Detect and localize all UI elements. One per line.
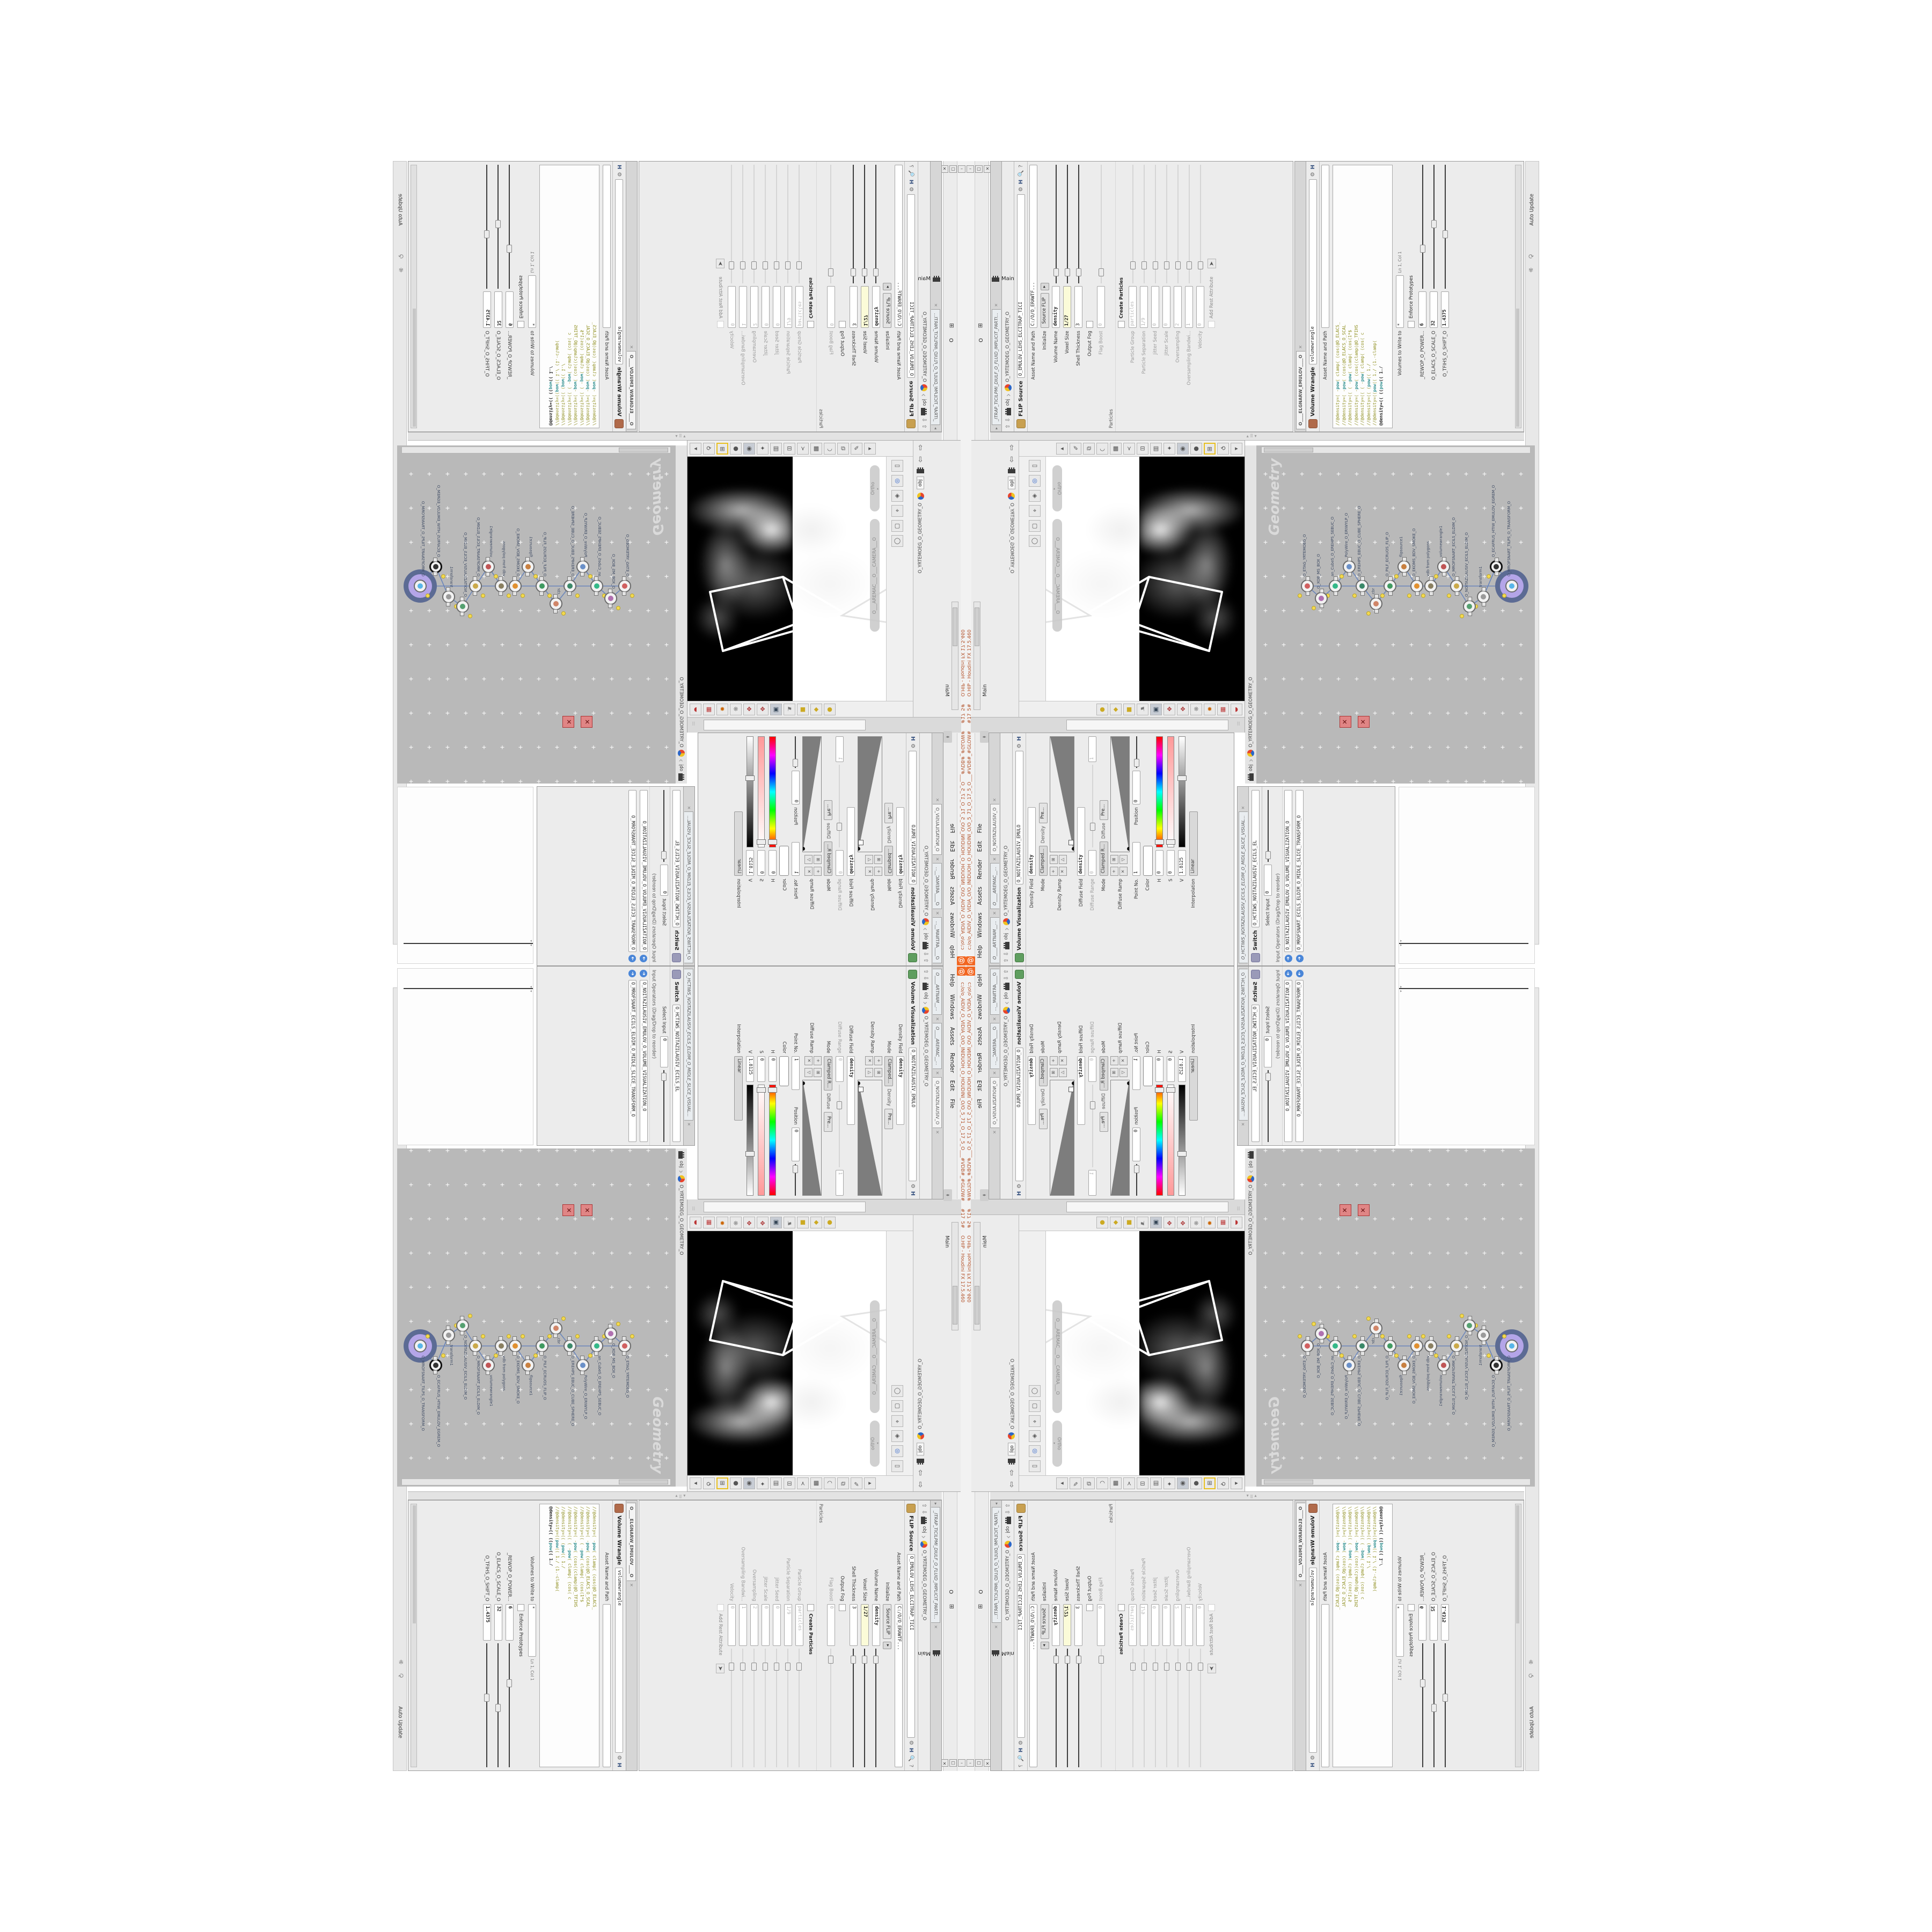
hscript-icon[interactable]: H bbox=[1018, 1748, 1024, 1752]
viewport-display-icon[interactable]: ✥ bbox=[743, 704, 755, 715]
color-swatch[interactable] bbox=[779, 1056, 789, 1086]
viewport-tool-icon[interactable]: ⋎ bbox=[1123, 443, 1135, 455]
param-field[interactable]: 3 bbox=[850, 286, 858, 328]
arrow-down-icon[interactable]: ⇩ bbox=[1005, 1510, 1011, 1514]
gear-icon[interactable]: ⚙ bbox=[910, 743, 916, 748]
obj-tab[interactable]: obj bbox=[1008, 1443, 1015, 1455]
error-badge[interactable]: ✕ bbox=[1358, 1204, 1370, 1216]
cursor-arrow-icon[interactable]: ➤ bbox=[1207, 1664, 1216, 1673]
network-node[interactable] bbox=[576, 1359, 589, 1372]
switch-tab[interactable]: O_HCTIWS_NOITAZILAUSIV_ECILS_ELDIM_O_MID… bbox=[1239, 969, 1248, 1121]
param-field[interactable]: 1.4375 bbox=[1441, 1604, 1449, 1641]
close-tab-icon[interactable]: ✕ bbox=[992, 1071, 997, 1075]
ramp-add-button[interactable]: + bbox=[874, 1056, 882, 1065]
splitter-buttons[interactable]: ◂▸ bbox=[980, 731, 989, 743]
viewport-display-icon[interactable]: ◆ bbox=[810, 704, 822, 715]
viewport-canvas[interactable] bbox=[687, 457, 886, 701]
menu-item-assets[interactable]: Assets bbox=[977, 887, 983, 905]
param-field[interactable]: 1.4375 bbox=[483, 291, 491, 328]
diffuse-range-slider[interactable] bbox=[1092, 1085, 1093, 1167]
h-scrollbar[interactable] bbox=[411, 165, 417, 428]
take-main-label[interactable]: Main bbox=[1001, 1650, 1014, 1656]
search-icon[interactable]: 🔍 bbox=[1018, 1755, 1024, 1761]
breadcrumb-obj[interactable]: obj bbox=[1005, 399, 1011, 406]
density-field-value[interactable]: density bbox=[1028, 807, 1036, 876]
ortho-pill[interactable]: Ortho▾ bbox=[870, 465, 880, 511]
wrangle-node-name-field[interactable]: volumewrangle bbox=[1309, 179, 1317, 364]
volumes-field[interactable]: * bbox=[1396, 1604, 1404, 1657]
viewport-tool-icon[interactable]: ◉ bbox=[1177, 443, 1189, 455]
init-dropdown[interactable]: ▸ bbox=[883, 1642, 892, 1649]
param-slider[interactable] bbox=[1200, 165, 1201, 283]
close-button[interactable]: ✕ bbox=[941, 165, 948, 173]
menu-item-assets[interactable]: Assets bbox=[949, 887, 955, 905]
param-slider[interactable] bbox=[509, 165, 510, 289]
param-slider[interactable] bbox=[1078, 1649, 1079, 1767]
color-swatch[interactable] bbox=[779, 846, 789, 876]
cursor-arrow-icon[interactable]: ➤ bbox=[716, 259, 725, 268]
close-tab-icon[interactable]: ✕ bbox=[994, 303, 999, 307]
window-grid-icon[interactable]: ⊞ bbox=[978, 322, 983, 329]
point-no-value[interactable]: 1 bbox=[792, 842, 800, 876]
hscript-icon[interactable]: H bbox=[1016, 736, 1022, 741]
breadcrumb-obj[interactable]: obj bbox=[1005, 1526, 1011, 1533]
help-icon[interactable]: ? bbox=[1018, 1765, 1024, 1767]
network-node[interactable] bbox=[536, 1340, 548, 1352]
close-tab-icon[interactable]: ✕ bbox=[934, 303, 939, 307]
menu-extra[interactable]: O bbox=[948, 1590, 954, 1594]
network-node[interactable] bbox=[1343, 1359, 1356, 1372]
network-node[interactable] bbox=[1301, 1340, 1314, 1352]
flip-node-name-field[interactable]: O_EMULOV_LEHS_ELCITRAP_TICI bbox=[908, 194, 916, 378]
diffuse-range-max[interactable]: 1 bbox=[1088, 1170, 1096, 1196]
breadcrumb-obj[interactable]: obj bbox=[1004, 992, 1009, 999]
network-node[interactable] bbox=[1424, 1340, 1437, 1352]
viewport-geometry-path[interactable]: O_YRTEMOEG_O_GEOMETRY_O bbox=[918, 1359, 923, 1429]
param-slider[interactable] bbox=[853, 1649, 854, 1767]
network-node[interactable] bbox=[414, 580, 427, 592]
hue-gradient-slider[interactable] bbox=[1156, 1085, 1163, 1196]
ramp-delete-button[interactable]: ✕ bbox=[804, 867, 813, 876]
network-node[interactable] bbox=[1490, 560, 1503, 573]
param-field[interactable]: 1/27 bbox=[1063, 286, 1071, 328]
arrow-up-icon[interactable]: ⇧ bbox=[1004, 969, 1009, 974]
breadcrumb-path[interactable]: O_YRTEMOEG_O_GEOMETRY_O bbox=[1005, 312, 1011, 382]
param-slider[interactable] bbox=[1056, 1649, 1057, 1767]
network-node[interactable] bbox=[442, 590, 455, 603]
arrow-up-icon[interactable]: ⇧ bbox=[1005, 425, 1011, 429]
network-node[interactable] bbox=[469, 1340, 482, 1352]
error-badge[interactable]: ✕ bbox=[562, 1204, 574, 1216]
gear-icon[interactable]: ⚙ bbox=[909, 187, 914, 192]
minimize-button[interactable]: – bbox=[967, 165, 974, 173]
camera-name-pill[interactable]: O___AREMAC___O___CAMERA___O bbox=[1052, 1300, 1062, 1413]
network-node[interactable] bbox=[536, 580, 548, 592]
viewport-side-icon[interactable]: ▭ bbox=[1029, 1460, 1041, 1472]
sat-gradient-slider[interactable] bbox=[1167, 1085, 1174, 1196]
help-icon[interactable]: ? bbox=[909, 165, 914, 167]
viewport-display-icon[interactable]: ✸ bbox=[716, 704, 728, 715]
val-value[interactable]: 1.8125 bbox=[746, 850, 754, 876]
viewport-display-icon[interactable]: ▦ bbox=[703, 1217, 715, 1229]
pane-splitter[interactable]: ▴ ⠿ ▾ bbox=[990, 432, 1524, 441]
vex-code-editor[interactable]: //@density=( -pow( clamp( (cos(@O_ELACS_… bbox=[539, 165, 599, 428]
param-slider[interactable] bbox=[1067, 165, 1068, 283]
viewport-display-icon[interactable]: ▦ bbox=[1217, 1217, 1229, 1229]
param-slider[interactable] bbox=[1101, 165, 1102, 283]
viz-tab[interactable]: O____AREMAC__... bbox=[990, 1023, 999, 1069]
wrangle-tab[interactable]: O____ELGNARW_EMULOV____O bbox=[1296, 351, 1305, 429]
close-tab-icon[interactable]: ✕ bbox=[935, 1071, 940, 1075]
param-field[interactable]: particles bbox=[1129, 1604, 1137, 1646]
viz-tab[interactable]: O_NOITAZILAUSIV_O bbox=[990, 804, 999, 855]
param-field[interactable]: particles bbox=[1129, 286, 1137, 328]
network-v-scrollbar[interactable] bbox=[401, 1479, 671, 1485]
breadcrumb-obj[interactable]: obj bbox=[923, 992, 928, 999]
presets2-button[interactable]: Pre... bbox=[824, 800, 833, 821]
ramp-add-button[interactable]: + bbox=[814, 1056, 822, 1065]
viewport-display-icon[interactable]: ✥ bbox=[1177, 704, 1189, 715]
switch-node-name-field[interactable]: O_HCTIWS_NOITAZILAUSIV_ECILS_EL bbox=[673, 1005, 681, 1142]
select-input-slider[interactable] bbox=[1268, 790, 1269, 862]
hue-gradient-slider[interactable] bbox=[769, 1085, 776, 1196]
param-slider[interactable] bbox=[1166, 1649, 1167, 1767]
hue-value[interactable]: 0 bbox=[769, 1056, 777, 1082]
menu-extra[interactable]: O bbox=[978, 338, 984, 342]
param-slider[interactable] bbox=[1132, 165, 1133, 283]
viewport-tool-icon[interactable]: ⟳ bbox=[703, 1478, 715, 1490]
val-gradient-slider[interactable] bbox=[747, 736, 753, 847]
menu-item-windows[interactable]: Windows bbox=[949, 912, 955, 938]
select-input-slider[interactable] bbox=[664, 1070, 665, 1142]
viewport-display-icon[interactable]: ✸ bbox=[1204, 1217, 1216, 1229]
viewport-display-icon[interactable]: ✥ bbox=[1163, 1217, 1175, 1229]
breadcrumb-path[interactable]: O_YRTEMOEG_O_GEOMETRY_O bbox=[921, 1550, 927, 1620]
ramp-add-button[interactable]: + bbox=[1110, 867, 1118, 876]
param-field[interactable]: 32 bbox=[1430, 1604, 1438, 1641]
camera-name-pill[interactable]: O___AREMAC___O___CAMERA___O bbox=[870, 1300, 880, 1413]
param-field[interactable]: 1/9 bbox=[784, 1604, 792, 1646]
param-field[interactable]: 1 bbox=[739, 286, 747, 328]
network-node[interactable] bbox=[563, 1340, 576, 1352]
param-field[interactable]: 3 bbox=[1074, 286, 1082, 328]
network-node[interactable] bbox=[1356, 1340, 1368, 1352]
selected-node-ring[interactable] bbox=[404, 1329, 437, 1363]
arrow-down-icon[interactable]: ⇩ bbox=[921, 1510, 927, 1514]
param-slider[interactable] bbox=[765, 1649, 766, 1767]
viewport-tool-icon[interactable]: ✐ bbox=[851, 443, 862, 455]
network-node[interactable] bbox=[1343, 560, 1356, 573]
ramp-add-button[interactable]: + bbox=[874, 867, 882, 876]
arrow-down-icon[interactable]: ⇩ bbox=[917, 456, 924, 464]
param-slider[interactable] bbox=[498, 1643, 499, 1767]
network-node[interactable] bbox=[1463, 1319, 1476, 1332]
switch-input-path[interactable]: O_NOITAZILAUSIV_EMULOV_O_VOLUME_VISUALIZ… bbox=[1284, 980, 1292, 1142]
presets2-button[interactable]: Pre... bbox=[1100, 800, 1108, 821]
param-slider[interactable] bbox=[1422, 1643, 1423, 1767]
network-node[interactable] bbox=[576, 560, 589, 573]
param-field[interactable]: density bbox=[1052, 286, 1060, 328]
viewport-tool-icon[interactable]: ▸ bbox=[864, 1478, 876, 1490]
param-field[interactable]: 0 bbox=[1097, 286, 1105, 328]
viewport-side-icon[interactable]: ⌖ bbox=[891, 505, 903, 517]
param-field[interactable]: 1.4375 bbox=[1441, 291, 1449, 328]
ramp-delete-button[interactable]: ✕ bbox=[1059, 867, 1067, 876]
viewport-tool-icon[interactable]: ◂ bbox=[690, 1478, 701, 1490]
menu-item-file[interactable]: File bbox=[977, 824, 983, 833]
viewport-tab[interactable] bbox=[1066, 720, 1228, 730]
create-particles-checkbox[interactable] bbox=[807, 1604, 814, 1611]
refresh-icon[interactable]: ⟳ bbox=[398, 253, 404, 260]
viewport-side-icon[interactable]: ▢ bbox=[1029, 1400, 1041, 1412]
switch-input-item[interactable]: ➜O_NOITAZILAUSIV_EMULOV_O_VOLUME_VISUALI… bbox=[1283, 787, 1294, 965]
viewport-tool-icon[interactable]: ▸ bbox=[1056, 443, 1068, 455]
viewport-tool-icon[interactable]: ▩ bbox=[810, 1478, 822, 1490]
arrow-up-icon[interactable]: ⇧ bbox=[917, 1480, 924, 1488]
help-icon[interactable]: ? bbox=[1018, 165, 1024, 167]
auto-update-label[interactable]: Auto Update bbox=[397, 194, 403, 225]
splitter-buttons[interactable]: ◂▸ bbox=[980, 1189, 989, 1201]
viewport-side-icon[interactable]: ▭ bbox=[891, 1460, 903, 1472]
param-field[interactable]: 32 bbox=[494, 291, 502, 328]
menu-item-help[interactable]: Help bbox=[949, 945, 955, 958]
arrow-up-icon[interactable]: ⇧ bbox=[1008, 1480, 1015, 1488]
ramp-add-button[interactable]: + bbox=[1110, 1056, 1118, 1065]
wrangle-asset-field[interactable] bbox=[1321, 1604, 1329, 1767]
presets2-button[interactable]: Pre... bbox=[1100, 1112, 1108, 1132]
param-checkbox[interactable] bbox=[1086, 321, 1093, 328]
viewport-tool-icon[interactable]: ⋎ bbox=[797, 443, 809, 455]
viewport-display-icon[interactable]: ▣ bbox=[770, 1217, 782, 1229]
volumes-field[interactable]: * bbox=[528, 275, 536, 328]
enforce-checkbox[interactable] bbox=[1408, 321, 1415, 328]
param-field[interactable]: 2 bbox=[1174, 1604, 1182, 1646]
param-slider[interactable] bbox=[777, 1649, 778, 1767]
viewport-display-icon[interactable]: ✸ bbox=[716, 1217, 728, 1229]
param-slider[interactable] bbox=[788, 165, 789, 283]
ramp-flag-button[interactable]: △ bbox=[865, 855, 873, 864]
auto-update-label[interactable]: Auto Update bbox=[1529, 1707, 1535, 1738]
param-field[interactable]: 3 bbox=[850, 1604, 858, 1646]
v-scrollbar[interactable] bbox=[952, 602, 958, 710]
mode-dropdown[interactable]: Clamped... bbox=[1039, 1056, 1048, 1086]
ortho-pill[interactable]: Ortho▾ bbox=[870, 1421, 880, 1467]
viewport-display-icon[interactable]: ✸ bbox=[1204, 704, 1216, 715]
viewport-side-icon[interactable]: ◈ bbox=[1029, 1430, 1041, 1442]
network-node[interactable] bbox=[1384, 580, 1396, 592]
network-v-scrollbar[interactable] bbox=[1261, 447, 1531, 453]
ramp-delete-button[interactable]: ✕ bbox=[865, 867, 873, 876]
switch-tab[interactable]: O_HCTIWS_NOITAZILAUSIV_ECILS_ELDIM_O_MID… bbox=[685, 812, 694, 964]
pane-splitter[interactable]: ▴ ⠿ ▾ bbox=[990, 1491, 1524, 1500]
error-badge[interactable]: ✕ bbox=[562, 716, 574, 728]
breadcrumb-obj[interactable]: obj bbox=[921, 399, 927, 406]
help-icon[interactable]: ? bbox=[909, 1765, 914, 1767]
menu-item-help[interactable]: Help bbox=[977, 974, 983, 987]
flip-asset-field[interactable]: C:/O/O_ERAWTF... bbox=[1029, 1604, 1037, 1767]
init-button[interactable]: Source FLIP bbox=[883, 293, 892, 328]
menu-item-windows[interactable]: Windows bbox=[977, 912, 983, 938]
ramp-delete-button[interactable]: ✕ bbox=[1119, 1056, 1128, 1065]
wrangle-node-name-field[interactable]: volumewrangle bbox=[1309, 1568, 1317, 1752]
flip-node-name-field[interactable]: O_EMULOV_LEHS_ELCITRAP_TICI bbox=[1017, 194, 1025, 378]
hscript-icon[interactable]: H bbox=[1310, 165, 1316, 169]
restore-button[interactable]: ▢ bbox=[975, 165, 983, 173]
init-dropdown[interactable]: ▸ bbox=[883, 283, 892, 290]
viewport-tool-icon[interactable]: ◡ bbox=[824, 443, 836, 455]
viewport-display-icon[interactable]: ■ bbox=[1123, 704, 1135, 715]
diffuse-ramp-widget[interactable] bbox=[1110, 736, 1130, 852]
viewport-display-icon[interactable]: ⚑ bbox=[1137, 1217, 1148, 1229]
param-field[interactable]: 1 bbox=[1185, 286, 1193, 328]
add-rest-checkbox[interactable] bbox=[1208, 321, 1215, 328]
gear-icon[interactable]: ⚙ bbox=[910, 1184, 916, 1189]
network-node[interactable] bbox=[1410, 1340, 1423, 1352]
diffuse-range-min[interactable]: 0 bbox=[1088, 850, 1096, 876]
interp-dropdown[interactable]: Linear bbox=[1189, 811, 1198, 876]
close-tab-icon[interactable]: ✕ bbox=[935, 798, 940, 802]
param-field[interactable]: 0 bbox=[762, 1604, 770, 1646]
param-field[interactable]: 0 bbox=[1151, 286, 1159, 328]
window-grid-icon[interactable]: ⊞ bbox=[978, 1603, 983, 1610]
window-grid-icon[interactable]: ⊞ bbox=[949, 1603, 954, 1610]
viewport-tool-icon[interactable]: ⊞ bbox=[1204, 1478, 1216, 1490]
ramp-flag-button[interactable]: ▽ bbox=[1119, 855, 1128, 864]
param-slider[interactable] bbox=[1101, 1649, 1102, 1767]
close-tab-icon[interactable]: ✕ bbox=[630, 1583, 634, 1587]
viewport-side-icon[interactable]: ▭ bbox=[1029, 460, 1041, 472]
enforce-checkbox[interactable] bbox=[517, 1604, 524, 1611]
viewport-tool-icon[interactable]: ◉ bbox=[743, 443, 755, 455]
drag-handle-icon[interactable]: ➜ bbox=[1285, 955, 1292, 962]
param-field[interactable]: 6 bbox=[506, 291, 514, 328]
param-slider[interactable] bbox=[799, 165, 800, 283]
viz-node-name-field[interactable]: O_NOITAZILAUSIV_EMULO bbox=[1015, 1048, 1023, 1181]
error-badge[interactable]: ✕ bbox=[581, 1204, 592, 1216]
hscript-icon[interactable]: H bbox=[910, 736, 916, 741]
menu-item-windows[interactable]: Windows bbox=[949, 994, 955, 1020]
switch-input-item[interactable]: ➜O_MROFSNART_ECILS_ELDIM_O_MIDLE_SLICE_T… bbox=[1294, 967, 1305, 1145]
viewport-display-icon[interactable]: ⚑ bbox=[784, 1217, 795, 1229]
gear-icon[interactable]: ⚙ bbox=[617, 172, 623, 177]
menu-item-help[interactable]: Help bbox=[977, 945, 983, 958]
param-field[interactable]: 1/9 bbox=[784, 286, 792, 328]
viewport-side-icon[interactable]: ◯ bbox=[1029, 1385, 1041, 1397]
mode-dropdown[interactable]: Clamped... bbox=[885, 1056, 894, 1086]
param-field[interactable]: 32 bbox=[1430, 291, 1438, 328]
network-node[interactable] bbox=[1437, 560, 1450, 573]
take-main-label[interactable]: Main bbox=[918, 276, 931, 282]
param-field[interactable]: density bbox=[872, 286, 880, 328]
network-canvas[interactable]: obj › O_YRTEMOEG_O_GEOMETRY_O + + + + + … bbox=[397, 1148, 687, 1487]
close-tab-icon[interactable]: ✕ bbox=[935, 857, 940, 861]
viewport-tool-icon[interactable]: ✐ bbox=[1070, 1478, 1081, 1490]
switch-input-item[interactable]: ➜O_NOITAZILAUSIV_EMULOV_O_VOLUME_VISUALI… bbox=[638, 787, 649, 965]
restore-button[interactable]: ▢ bbox=[949, 1759, 957, 1767]
param-field[interactable]: 0 bbox=[1196, 286, 1204, 328]
ramp-slide-button[interactable]: ⊞ bbox=[814, 855, 822, 864]
network-node[interactable] bbox=[442, 1329, 455, 1342]
network-node[interactable] bbox=[495, 580, 508, 592]
network-v-scrollbar[interactable] bbox=[401, 447, 671, 453]
position-value[interactable]: 0 bbox=[792, 771, 800, 804]
error-badge[interactable]: ✕ bbox=[1340, 1204, 1351, 1216]
presets-button[interactable]: Pre... bbox=[1039, 1109, 1048, 1129]
viewport-geometry-path[interactable]: O_YRTEMOEG_O_GEOMETRY_O bbox=[1009, 1359, 1014, 1429]
param-slider[interactable] bbox=[754, 165, 755, 283]
diffuse-ramp-widget[interactable] bbox=[802, 736, 822, 852]
close-tab-icon[interactable]: ✕ bbox=[992, 857, 997, 861]
viewport-side-icon[interactable]: ◯ bbox=[891, 1385, 903, 1397]
hue-gradient-slider[interactable] bbox=[1156, 736, 1163, 847]
v-scrollbar[interactable] bbox=[974, 602, 980, 710]
gear-icon[interactable]: ⚙ bbox=[1018, 187, 1024, 192]
breadcrumb-obj[interactable]: obj bbox=[923, 933, 928, 940]
density-ramp-widget[interactable] bbox=[1050, 736, 1074, 852]
position-slider[interactable] bbox=[795, 736, 796, 768]
param-slider[interactable] bbox=[1166, 165, 1167, 283]
hue-value[interactable]: 0 bbox=[1155, 850, 1163, 876]
switch-node-name-field[interactable]: O_HCTIWS_NOITAZILAUSIV_ECILS_EL bbox=[1252, 790, 1260, 927]
flip-pane-tab[interactable]: _ITRAP_TICILPMI_DIULF_O_FLUID_IMPLICIT_P… bbox=[932, 309, 941, 425]
network-node[interactable] bbox=[563, 580, 576, 592]
interp-dropdown[interactable]: Linear bbox=[1189, 1056, 1198, 1121]
menu-item-file[interactable]: File bbox=[949, 824, 955, 833]
param-slider[interactable] bbox=[1056, 165, 1057, 283]
param-field[interactable]: 32 bbox=[494, 1604, 502, 1641]
volumes-field[interactable]: * bbox=[1396, 275, 1404, 328]
viz-tab[interactable]: O_NOITAZILAUSIV_O bbox=[933, 1077, 942, 1129]
param-slider[interactable] bbox=[1177, 1649, 1179, 1767]
sat-value[interactable]: 0 bbox=[757, 1056, 765, 1082]
viewport-side-icon[interactable]: ⌖ bbox=[891, 1415, 903, 1427]
network-node[interactable] bbox=[1477, 590, 1490, 603]
param-slider[interactable] bbox=[831, 165, 832, 283]
viewport-tool-icon[interactable]: ⋎ bbox=[797, 1478, 809, 1490]
menu-item-render[interactable]: Render bbox=[949, 859, 955, 879]
switch-input-item[interactable]: ➜O_NOITAZILAUSIV_EMULOV_O_VOLUME_VISUALI… bbox=[638, 967, 649, 1145]
mode2-dropdown[interactable]: Clamped R... bbox=[824, 841, 833, 876]
diffuse-ramp-widget[interactable] bbox=[802, 1080, 822, 1196]
switch-input-path[interactable]: O_NOITAZILAUSIV_EMULOV_O_VOLUME_VISUALIZ… bbox=[640, 790, 648, 952]
network-node[interactable] bbox=[1437, 1359, 1450, 1372]
wrangle-tab[interactable]: O____ELGNARW_EMULOV____O bbox=[627, 351, 636, 429]
menu-extra[interactable]: O bbox=[948, 338, 954, 342]
vex-code-editor[interactable]: //@density=( -pow( clamp( (cos(@O_ELACS_… bbox=[1333, 1504, 1393, 1767]
ramp-add-button[interactable]: + bbox=[814, 867, 822, 876]
sat-value[interactable]: 0 bbox=[1167, 1056, 1175, 1082]
switch-input-path[interactable]: O_MROFSNART_ECILS_ELDIM_O_MIDLE_SLICE_TR… bbox=[628, 790, 636, 952]
param-slider[interactable] bbox=[1433, 165, 1435, 289]
cursor-arrow-icon[interactable]: ➤ bbox=[1207, 259, 1216, 268]
viewport-canvas[interactable] bbox=[1046, 457, 1245, 701]
breadcrumb-path[interactable]: O_YRTEMOEG_O_GEOMETRY_O bbox=[923, 846, 928, 916]
viewport-tool-icon[interactable]: ⊟ bbox=[1137, 1478, 1148, 1490]
param-field[interactable]: 1/27 bbox=[861, 286, 869, 328]
viewport-side-icon[interactable]: ◯ bbox=[1029, 535, 1041, 547]
refresh-icon[interactable]: ⟳ bbox=[1528, 253, 1534, 260]
switch-tab[interactable]: O_HCTIWS_NOITAZILAUSIV_ECILS_ELDIM_O_MID… bbox=[1239, 812, 1248, 964]
density-ramp-widget[interactable] bbox=[858, 736, 882, 852]
viewport-side-icon[interactable]: ◎ bbox=[891, 475, 903, 487]
val-gradient-slider[interactable] bbox=[747, 1085, 753, 1196]
point-no-value[interactable]: 1 bbox=[1132, 842, 1140, 876]
viewport-side-icon[interactable]: ▢ bbox=[891, 1400, 903, 1412]
param-field[interactable]: 0 bbox=[762, 286, 770, 328]
gear-icon[interactable]: ⚙ bbox=[617, 1755, 623, 1760]
network-canvas[interactable]: obj › O_YRTEMOEG_O_GEOMETRY_O + + + + + … bbox=[1245, 445, 1535, 784]
ramp-flag-button[interactable]: △ bbox=[1059, 855, 1067, 864]
